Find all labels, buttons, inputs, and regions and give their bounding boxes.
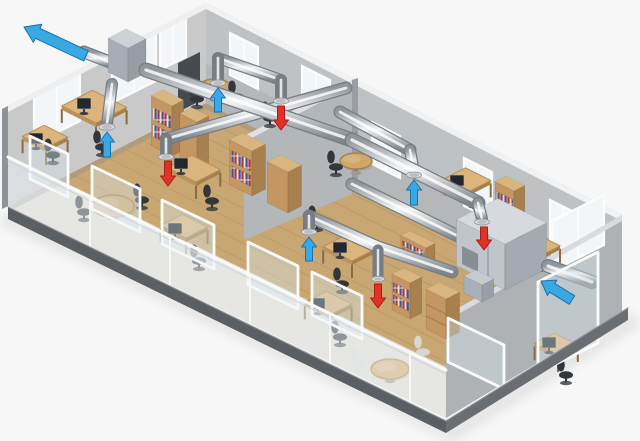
scene-canvas (0, 0, 640, 441)
diffuser (372, 276, 385, 281)
diffuser (302, 229, 317, 235)
duct-drop (478, 203, 482, 219)
diffuser (159, 154, 174, 160)
duct-drop-from-unit (107, 84, 112, 124)
hvac-isometric-illustration (0, 0, 640, 441)
diffuser (407, 172, 422, 178)
wardrobe (267, 155, 301, 213)
bookcase-binders (230, 133, 266, 196)
diffuser (475, 219, 490, 225)
bookcase-binders (392, 268, 422, 319)
diffuser (211, 80, 226, 86)
diffuser (274, 98, 289, 104)
diffuser (99, 124, 115, 130)
exhaust-air-out-arrow (24, 24, 88, 61)
